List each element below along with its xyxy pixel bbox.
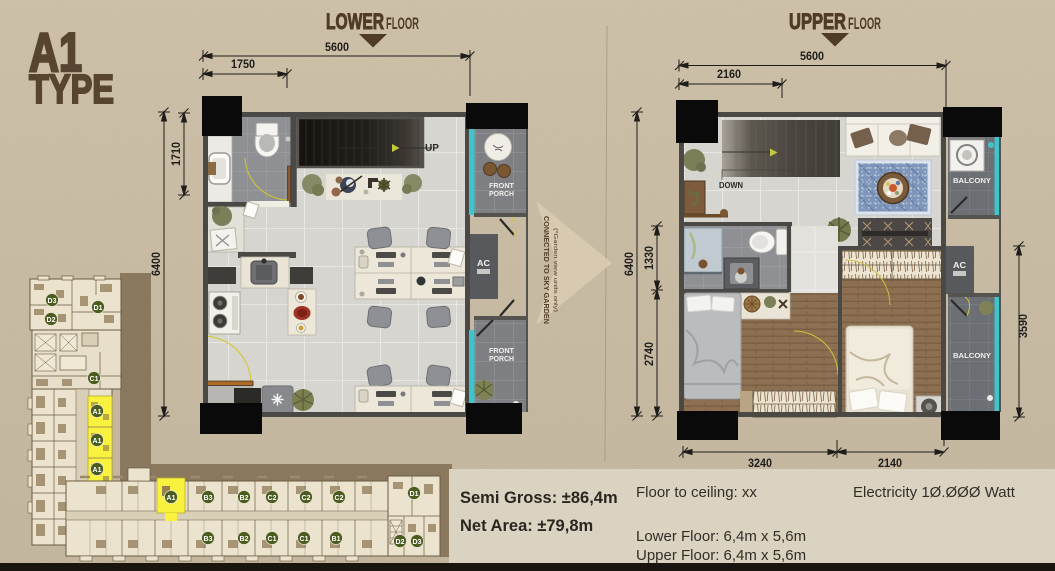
svg-text:C1: C1: [268, 536, 277, 543]
svg-text:2740: 2740: [644, 342, 656, 366]
svg-text:FLOOR: FLOOR: [848, 15, 881, 33]
svg-text:BALCONY: BALCONY: [953, 351, 991, 360]
svg-text:LOWER: LOWER: [326, 9, 384, 34]
svg-text:6400: 6400: [624, 252, 636, 276]
svg-text:2160: 2160: [717, 69, 741, 81]
svg-text:1750: 1750: [231, 59, 255, 71]
svg-text:3590: 3590: [1018, 314, 1030, 338]
svg-text:2140: 2140: [878, 458, 902, 470]
svg-text:D2: D2: [396, 539, 405, 546]
svg-text:UPPER: UPPER: [789, 9, 846, 34]
svg-text:UP: UP: [425, 143, 439, 154]
svg-text:C1: C1: [90, 376, 99, 383]
svg-text:5600: 5600: [325, 42, 349, 54]
svg-text:Lower Floor: 6,4m x 5,6m: Lower Floor: 6,4m x 5,6m: [636, 528, 806, 545]
svg-text:B2: B2: [240, 495, 249, 502]
svg-text:CONNECTED TO SKY GARDEN: CONNECTED TO SKY GARDEN: [542, 216, 551, 324]
svg-text:3240: 3240: [748, 458, 772, 470]
svg-text:B3: B3: [204, 495, 213, 502]
svg-text:TYPE: TYPE: [29, 66, 114, 112]
svg-text:AC: AC: [953, 261, 966, 270]
svg-text:C2: C2: [302, 495, 311, 502]
svg-text:1330: 1330: [644, 246, 656, 270]
svg-text:D1: D1: [410, 491, 419, 498]
svg-text:6400: 6400: [151, 252, 163, 276]
svg-text:B2: B2: [240, 536, 249, 543]
svg-text:5600: 5600: [800, 51, 824, 63]
svg-text:Floor to ceiling: xx: Floor to ceiling: xx: [636, 484, 757, 501]
svg-text:1710: 1710: [171, 142, 183, 166]
svg-text:A1: A1: [93, 467, 102, 474]
svg-text:(*Garden view units only): (*Garden view units only): [552, 228, 558, 312]
svg-text:FLOOR: FLOOR: [386, 15, 419, 33]
svg-text:AC: AC: [477, 259, 490, 268]
svg-text:A1: A1: [93, 438, 102, 445]
svg-text:D2: D2: [47, 317, 56, 324]
svg-text:A1: A1: [167, 495, 176, 502]
svg-text:B3: B3: [204, 536, 213, 543]
svg-text:PORCH: PORCH: [489, 189, 514, 198]
svg-text:D1: D1: [94, 305, 103, 312]
svg-text:BALCONY: BALCONY: [953, 176, 991, 185]
svg-text:C1: C1: [300, 536, 309, 543]
svg-text:Upper Floor: 6,4m x 5,6m: Upper Floor: 6,4m x 5,6m: [636, 547, 806, 564]
svg-text:Semi Gross: ±86,4m: Semi Gross: ±86,4m: [460, 489, 618, 507]
svg-text:C2: C2: [335, 495, 344, 502]
svg-text:Electricity 1Ø.ØØØ Watt: Electricity 1Ø.ØØØ Watt: [853, 484, 1016, 501]
svg-text:D3: D3: [48, 298, 57, 305]
svg-text:A1: A1: [93, 409, 102, 416]
svg-text:C2: C2: [268, 495, 277, 502]
svg-text:B1: B1: [332, 536, 341, 543]
svg-text:DOWN: DOWN: [719, 180, 743, 190]
svg-text:Net Area: ±79,8m: Net Area: ±79,8m: [460, 517, 593, 535]
svg-text:PORCH: PORCH: [489, 354, 514, 363]
svg-text:D3: D3: [413, 539, 422, 546]
